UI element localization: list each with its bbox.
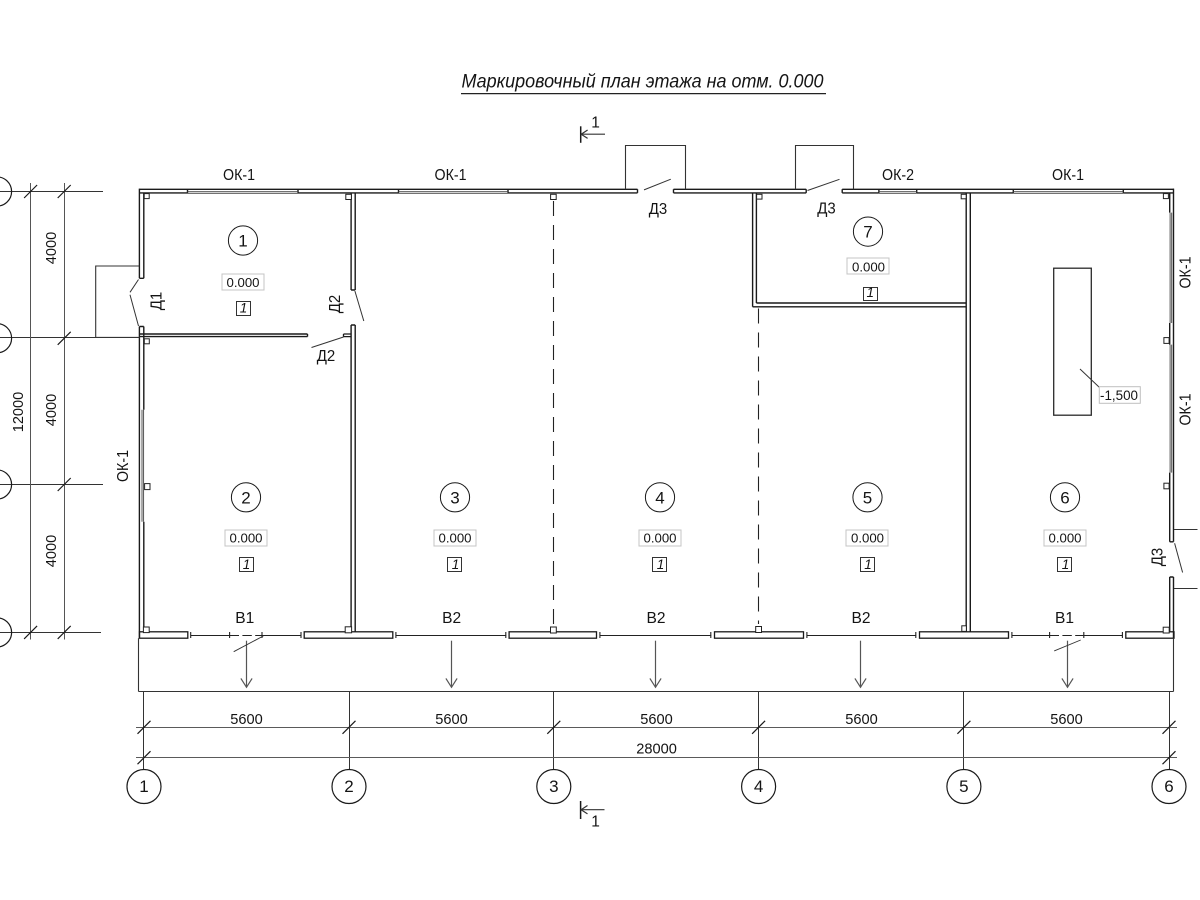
svg-text:ОК-1: ОК-1 [115, 450, 132, 482]
svg-text:1: 1 [864, 557, 872, 572]
svg-text:12000: 12000 [11, 392, 27, 433]
svg-text:4: 4 [655, 488, 664, 507]
svg-text:0.000: 0.000 [438, 531, 471, 546]
svg-text:1: 1 [452, 557, 460, 572]
svg-text:0.000: 0.000 [229, 531, 262, 546]
svg-text:Д2: Д2 [317, 348, 336, 365]
svg-text:1: 1 [139, 777, 148, 796]
svg-text:1: 1 [591, 814, 600, 831]
svg-text:5600: 5600 [230, 712, 262, 728]
svg-text:4000: 4000 [44, 394, 60, 426]
svg-text:ОК-1: ОК-1 [223, 167, 255, 184]
svg-text:1: 1 [657, 557, 665, 572]
svg-text:Д3: Д3 [817, 201, 836, 218]
svg-text:0.000: 0.000 [851, 531, 884, 546]
svg-text:1: 1 [238, 232, 247, 251]
svg-text:5: 5 [959, 777, 968, 796]
svg-text:Д3: Д3 [649, 201, 668, 218]
svg-text:5600: 5600 [1050, 712, 1082, 728]
svg-text:2: 2 [344, 777, 353, 796]
svg-text:6: 6 [1164, 777, 1173, 796]
svg-text:3: 3 [549, 777, 558, 796]
svg-text:1: 1 [867, 285, 875, 300]
svg-text:1: 1 [243, 557, 251, 572]
svg-text:В2: В2 [442, 610, 461, 627]
svg-text:В1: В1 [235, 610, 254, 627]
svg-text:4000: 4000 [44, 535, 60, 567]
svg-text:-1,500: -1,500 [1100, 388, 1138, 403]
svg-text:5: 5 [863, 488, 872, 507]
svg-text:5600: 5600 [845, 712, 877, 728]
svg-text:В1: В1 [1055, 610, 1074, 627]
svg-text:1: 1 [240, 300, 248, 315]
svg-text:0.000: 0.000 [1048, 531, 1081, 546]
svg-text:Д2: Д2 [327, 295, 344, 314]
svg-text:В2: В2 [852, 610, 871, 627]
svg-text:0.000: 0.000 [852, 259, 885, 274]
svg-text:1: 1 [1062, 557, 1070, 572]
svg-text:2: 2 [241, 488, 250, 507]
svg-text:Д1: Д1 [149, 292, 166, 311]
svg-text:ОК-1: ОК-1 [435, 167, 467, 184]
svg-text:0.000: 0.000 [226, 275, 259, 290]
svg-text:1: 1 [591, 115, 600, 132]
svg-text:В2: В2 [647, 610, 666, 627]
svg-text:ОК-1: ОК-1 [1178, 256, 1195, 288]
svg-text:7: 7 [863, 223, 872, 242]
svg-text:0.000: 0.000 [643, 531, 676, 546]
svg-text:5600: 5600 [640, 712, 672, 728]
svg-text:4000: 4000 [44, 232, 60, 264]
svg-text:ОК-1: ОК-1 [1178, 393, 1195, 425]
svg-text:Маркировочный план этажа на от: Маркировочный план этажа на отм. 0.000 [462, 72, 824, 93]
svg-text:ОК-1: ОК-1 [1052, 167, 1084, 184]
svg-text:28000: 28000 [636, 742, 677, 758]
svg-text:6: 6 [1060, 488, 1069, 507]
svg-text:3: 3 [450, 488, 459, 507]
svg-text:Д3: Д3 [1150, 548, 1167, 567]
svg-text:4: 4 [754, 777, 763, 796]
svg-text:ОК-2: ОК-2 [882, 167, 914, 184]
svg-text:5600: 5600 [435, 712, 467, 728]
